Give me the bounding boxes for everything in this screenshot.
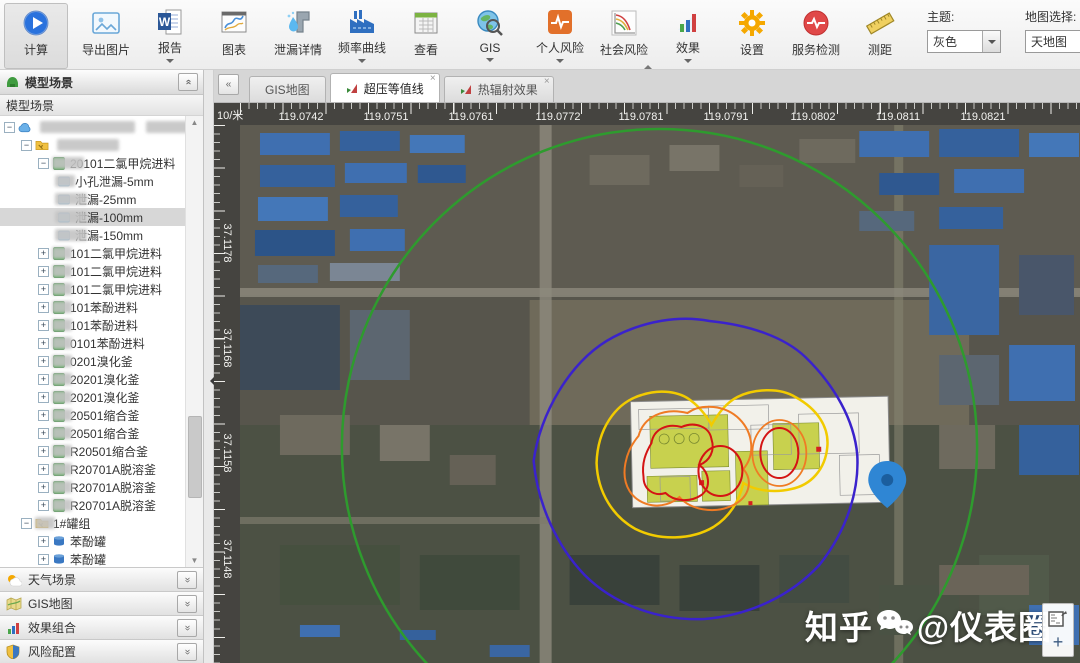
tree-item-label: 0101苯酚进料 <box>70 335 145 352</box>
tree-item-小孔泄漏-5mm[interactable]: 小孔泄漏-5mm <box>0 172 186 190</box>
计算-button[interactable]: 计算 <box>4 3 68 69</box>
model-scene-panel-header[interactable]: 模型场景 « <box>0 70 203 95</box>
expand-icon[interactable]: + <box>38 446 49 457</box>
tree-item[interactable]: − <box>0 118 186 136</box>
expand-icon[interactable]: + <box>38 266 49 277</box>
measure-ruler-icon <box>865 7 895 39</box>
tab-label: GIS地图 <box>265 81 310 98</box>
scroll-up-icon[interactable]: ▲ <box>186 118 203 127</box>
panel-collapse-button[interactable]: « <box>178 73 198 91</box>
toolbar-button-label: 泄漏详情 <box>274 41 322 58</box>
main-toolbar: 计算导出图片W报告图表泄漏详情频率曲线查看GIS个人风险社会风险效果设置服务检测… <box>0 0 1080 70</box>
效果-button[interactable]: 效果 <box>656 3 720 69</box>
tree-item-苯酚罐[interactable]: +苯酚罐 <box>0 550 186 567</box>
settings-gear-icon <box>738 7 766 39</box>
map-select-field: 地图选择:天地图 <box>1016 3 1080 69</box>
service-check-icon <box>802 7 830 39</box>
tree-item-泄漏-25mm[interactable]: 泄漏-25mm <box>0 190 186 208</box>
tab-label: 超压等值线 <box>364 80 424 97</box>
tab-label: 热辐射效果 <box>478 81 538 98</box>
longitude-tick-label: 119.0761 <box>448 111 493 123</box>
latitude-tick-label: 37.1178 <box>221 224 233 263</box>
frequency-factory-icon <box>347 7 377 37</box>
section-expand-button[interactable]: » <box>177 643 197 661</box>
tree-item-label: R20701A脱溶釜 <box>70 461 156 478</box>
expand-icon[interactable]: + <box>38 554 49 565</box>
section-天气场景[interactable]: 天气场景» <box>0 567 203 591</box>
weather-icon <box>6 572 22 587</box>
报告-button[interactable]: W报告 <box>138 3 202 69</box>
contour-chart-icon <box>460 84 472 95</box>
chart-board-icon <box>220 7 248 39</box>
close-icon[interactable]: × <box>430 74 436 84</box>
tree-item-0201溴化釜[interactable]: +0201溴化釜 <box>0 352 186 370</box>
section-效果组合[interactable]: 效果组合» <box>0 615 203 639</box>
tree-item-101二氯甲烷进料[interactable]: +101二氯甲烷进料 <box>0 280 186 298</box>
测距-button[interactable]: 测距 <box>848 3 912 69</box>
overview-map-icon[interactable] <box>1046 607 1070 631</box>
expand-icon[interactable]: + <box>38 536 49 547</box>
section-expand-button[interactable]: » <box>177 595 197 613</box>
dropdown-arrow-icon[interactable] <box>166 59 174 67</box>
longitude-tick-label: 119.0821 <box>960 111 1005 123</box>
section-label: GIS地图 <box>28 595 73 612</box>
toolbar-button-label: 查看 <box>414 41 438 58</box>
map-zoom-control: + <box>1042 603 1074 657</box>
tree-item-20101二氯甲烷进料[interactable]: −20101二氯甲烷进料 <box>0 154 186 172</box>
map-select-label: 地图选择: <box>1025 8 1080 25</box>
tree-item-R20701A脱溶釜[interactable]: +R20701A脱溶釜 <box>0 496 186 514</box>
tree-item-1#罐组[interactable]: −1#罐组 <box>0 514 186 532</box>
图表-button[interactable]: 图表 <box>202 3 266 69</box>
cloud-icon <box>18 121 32 134</box>
view-calendar-icon <box>412 7 440 39</box>
theme-value: 灰色 <box>928 33 982 50</box>
tab-超压等值线[interactable]: 超压等值线× <box>330 73 440 102</box>
report-word-icon: W <box>156 7 184 37</box>
longitude-tick-label: 119.0781 <box>618 111 663 123</box>
tree-item-label: 小孔泄漏-5mm <box>75 173 154 190</box>
expand-icon[interactable]: + <box>38 248 49 259</box>
tree-item-101苯酚进料[interactable]: +101苯酚进料 <box>0 298 186 316</box>
tree-item-label: 20101二氯甲烷进料 <box>70 155 175 172</box>
个人风险-button[interactable]: 个人风险 <box>528 3 592 69</box>
effect-combo-icon <box>6 620 22 635</box>
satellite-map[interactable] <box>240 125 1080 663</box>
expand-icon[interactable]: + <box>38 464 49 475</box>
left-sidebar: 模型场景 « 模型场景 −−−20101二氯甲烷进料小孔泄漏-5mm泄漏-25m… <box>0 70 204 663</box>
tree-item-R20501缩合釜[interactable]: +R20501缩合釜 <box>0 442 186 460</box>
section-风险配置[interactable]: 风险配置» <box>0 639 203 663</box>
longitude-tick-label: 119.0772 <box>535 111 580 123</box>
longitude-tick-label: 119.0802 <box>790 111 835 123</box>
tree-item-label: 101二氯甲烷进料 <box>70 263 162 280</box>
collapse-icon[interactable]: − <box>21 140 32 151</box>
toolbar-button-label: 社会风险 <box>600 41 648 58</box>
tree-item-label: R20701A脱溶釜 <box>70 497 156 514</box>
theme-label: 主题: <box>927 8 1001 25</box>
tree-item-label: 苯酚罐 <box>70 533 106 550</box>
social-risk-icon <box>610 7 638 39</box>
effect-bars-icon <box>674 7 702 37</box>
导出图片-button[interactable]: 导出图片 <box>74 3 138 69</box>
tank-icon <box>52 553 66 566</box>
toolbar-button-label: 设置 <box>740 41 764 58</box>
tree-item-label: 101苯酚进料 <box>70 299 138 316</box>
tree-item-label: R20701A脱溶釜 <box>70 479 156 496</box>
longitude-ruler: 119.0742119.0751119.0761119.0772119.0781… <box>214 103 1080 125</box>
scroll-down-icon[interactable]: ▼ <box>186 556 203 565</box>
watermark: 知乎 @仪表圈 <box>805 601 1052 649</box>
latitude-ruler: 37.117837.116837.115837.1148 <box>214 125 240 663</box>
dropdown-arrow-icon[interactable] <box>358 59 366 67</box>
tree-item-label: 苯酚罐 <box>70 551 106 568</box>
risk-config-icon <box>6 644 22 659</box>
map-select-value: 天地图 <box>1026 33 1080 50</box>
dropdown-arrow-icon[interactable] <box>556 59 564 67</box>
tree-item-101二氯甲烷进料[interactable]: +101二氯甲烷进料 <box>0 244 186 262</box>
latitude-tick-label: 37.1168 <box>221 329 233 368</box>
toolbar-button-label: 服务检测 <box>792 41 840 58</box>
tree-item-20201溴化釜[interactable]: +20201溴化釜 <box>0 388 186 406</box>
expand-icon[interactable]: + <box>38 410 49 421</box>
tab-热辐射效果[interactable]: 热辐射效果× <box>444 76 554 102</box>
服务检测-button[interactable]: 服务检测 <box>784 3 848 69</box>
社会风险-button[interactable]: 社会风险 <box>592 3 656 69</box>
map-viewport[interactable]: 119.0742119.0751119.0761119.0772119.0781… <box>214 103 1080 663</box>
close-icon[interactable]: × <box>544 77 550 87</box>
longitude-tick-label: 119.0811 <box>876 111 920 123</box>
toolbar-button-label: 计算 <box>24 41 48 58</box>
zoom-in-button[interactable]: + <box>1053 631 1064 653</box>
gis-map-icon <box>6 596 22 611</box>
toolbar-button-label: GIS <box>480 41 501 55</box>
leak-pipe-icon <box>284 7 312 39</box>
toolbar-button-label: 报告 <box>158 39 182 56</box>
dropdown-arrow-icon[interactable] <box>486 58 494 66</box>
calc-play-icon <box>22 7 50 39</box>
folder-icon <box>35 139 49 152</box>
contour-chart-icon <box>346 83 358 94</box>
tree-item-0101苯酚进料[interactable]: +0101苯酚进料 <box>0 334 186 352</box>
section-label: 天气场景 <box>28 571 76 588</box>
collapse-icon[interactable]: − <box>21 518 32 529</box>
toolbar-button-label: 图表 <box>222 41 246 58</box>
scrollbar-thumb[interactable] <box>188 416 202 498</box>
expand-icon[interactable]: + <box>38 338 49 349</box>
longitude-tick-label: 119.0791 <box>703 111 748 123</box>
latitude-tick-label: 37.1158 <box>221 434 233 473</box>
section-expand-button[interactable]: » <box>177 571 197 589</box>
expand-icon[interactable]: + <box>38 356 49 367</box>
chevron-down-icon: » <box>182 649 192 655</box>
svg-text:W: W <box>159 15 171 29</box>
expand-icon[interactable]: + <box>38 428 49 439</box>
tree-item-101苯酚进料[interactable]: +101苯酚进料 <box>0 316 186 334</box>
panel-title: 模型场景 <box>25 74 73 91</box>
tab-GIS地图[interactable]: GIS地图 <box>249 76 326 102</box>
chevron-up-icon: « <box>183 79 193 85</box>
section-expand-button[interactable]: » <box>177 619 197 637</box>
tree-item-label: 101苯酚进料 <box>70 317 138 334</box>
dropdown-arrow-icon[interactable] <box>684 59 692 67</box>
latitude-tick-label: 37.1148 <box>221 540 233 579</box>
theme-select[interactable]: 灰色 <box>927 30 1001 53</box>
tree-item-20501缩合釜[interactable]: +20501缩合釜 <box>0 406 186 424</box>
tree-item-20201溴化釜[interactable]: +20201溴化釜 <box>0 370 186 388</box>
tree-scrollbar[interactable]: ▲ ▼ <box>185 116 203 567</box>
map-area: « GIS地图超压等值线×热辐射效果× 119.0742119.0751119.… <box>214 70 1080 663</box>
查看-button[interactable]: 查看 <box>394 3 458 69</box>
sidebar-splitter[interactable] <box>204 70 214 663</box>
expand-icon[interactable]: + <box>38 284 49 295</box>
section-label: 效果组合 <box>28 619 76 636</box>
频率曲线-button[interactable]: 频率曲线 <box>330 3 394 69</box>
expand-icon[interactable]: + <box>38 320 49 331</box>
toolbar-button-label: 效果 <box>676 39 700 56</box>
wechat-bubbles-icon <box>875 608 915 642</box>
tree-item-R20701A脱溶釜[interactable]: +R20701A脱溶釜 <box>0 478 186 496</box>
model-scene-icon <box>5 75 20 89</box>
GIS-button[interactable]: GIS <box>458 3 522 69</box>
tree-item-泄漏-150mm[interactable]: 泄漏-150mm <box>0 226 186 244</box>
tree-item-101二氯甲烷进料[interactable]: +101二氯甲烷进料 <box>0 262 186 280</box>
chevron-down-icon: » <box>182 577 192 583</box>
toolbar-button-label: 频率曲线 <box>338 39 386 56</box>
tree-item-label: 0201溴化釜 <box>70 353 133 370</box>
personal-risk-icon <box>546 7 574 37</box>
chevron-down-icon: » <box>182 601 192 607</box>
tree-item-R20701A脱溶釜[interactable]: +R20701A脱溶釜 <box>0 460 186 478</box>
theme-field: 主题:灰色 <box>918 3 1010 69</box>
longitude-tick-label: 119.0742 <box>278 111 323 123</box>
tree-item-label: 101二氯甲烷进料 <box>70 281 162 298</box>
tree-item-20501缩合釜[interactable]: +20501缩合釜 <box>0 424 186 442</box>
tree-item-label: 1#罐组 <box>53 515 90 532</box>
map-select-select[interactable]: 天地图 <box>1025 30 1080 53</box>
tree-item-label: 101二氯甲烷进料 <box>70 245 162 262</box>
chevron-down-icon[interactable] <box>982 31 1000 52</box>
tab-bar: « GIS地图超压等值线×热辐射效果× <box>214 70 1080 103</box>
tree-item[interactable]: − <box>0 136 186 154</box>
section-label: 风险配置 <box>28 643 76 660</box>
application-window: 计算导出图片W报告图表泄漏详情频率曲线查看GIS个人风险社会风险效果设置服务检测… <box>0 0 1080 663</box>
tree-item-label: 20201溴化釜 <box>70 389 139 406</box>
tree-item-label: 20501缩合釜 <box>70 407 139 424</box>
tree-group-header[interactable]: 模型场景 <box>0 95 203 116</box>
longitude-tick-label: 119.0751 <box>363 111 408 123</box>
section-GIS地图[interactable]: GIS地图» <box>0 591 203 615</box>
toolbar-button-label: 测距 <box>868 41 892 58</box>
tree-group-title: 模型场景 <box>6 97 54 114</box>
collapse-icon[interactable]: − <box>38 158 49 169</box>
expand-icon[interactable]: + <box>38 482 49 493</box>
tree-item-label: R20501缩合釜 <box>70 443 148 460</box>
collapse-icon[interactable]: − <box>4 122 15 133</box>
tank-icon <box>52 535 66 548</box>
tree-item-label: 20201溴化釜 <box>70 371 139 388</box>
chevron-down-icon: » <box>182 625 192 631</box>
toolbar-button-label: 个人风险 <box>536 39 584 56</box>
tree-item-泄漏-100mm[interactable]: 泄漏-100mm <box>0 208 186 226</box>
tab-scroll-left-button[interactable]: « <box>218 74 239 95</box>
expand-icon[interactable]: + <box>38 392 49 403</box>
tree-item-苯酚罐[interactable]: +苯酚罐 <box>0 532 186 550</box>
设置-button[interactable]: 设置 <box>720 3 784 69</box>
model-tree: −−−20101二氯甲烷进料小孔泄漏-5mm泄漏-25mm泄漏-100mm泄漏-… <box>0 116 203 567</box>
expand-icon[interactable]: + <box>38 302 49 313</box>
gis-globe-icon <box>475 7 505 39</box>
泄漏详情-button[interactable]: 泄漏详情 <box>266 3 330 69</box>
tree-item-label: 20501缩合釜 <box>70 425 139 442</box>
expand-icon[interactable]: + <box>38 500 49 511</box>
scale-unit-label: 10/米 <box>217 107 243 123</box>
toolbar-overflow-arrow-icon[interactable] <box>644 61 652 69</box>
main-content: 模型场景 « 模型场景 −−−20101二氯甲烷进料小孔泄漏-5mm泄漏-25m… <box>0 70 1080 663</box>
expand-icon[interactable]: + <box>38 374 49 385</box>
toolbar-button-label: 导出图片 <box>82 41 130 58</box>
export-image-icon <box>91 7 121 39</box>
